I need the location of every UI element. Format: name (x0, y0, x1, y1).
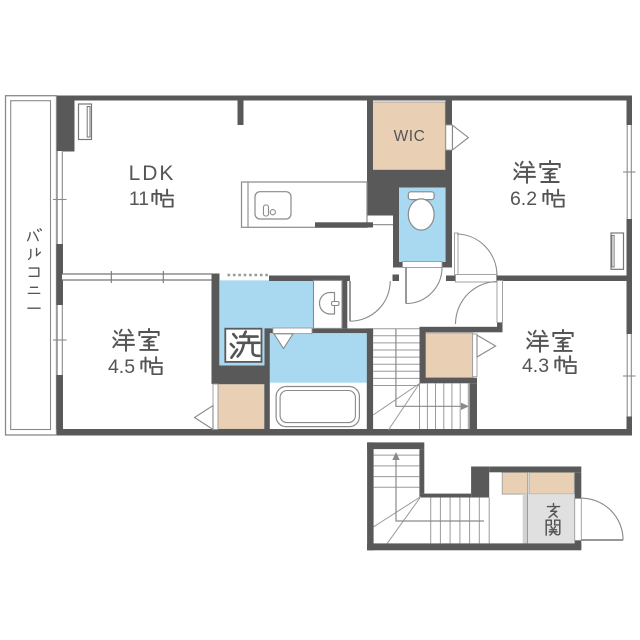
svg-text:4.5: 4.5 (108, 356, 135, 378)
svg-text:4.3: 4.3 (522, 355, 549, 377)
svg-text:LDK: LDK (129, 162, 176, 185)
svg-text:11: 11 (129, 188, 149, 210)
svg-text:6.2: 6.2 (510, 188, 537, 210)
svg-text:WIC: WIC (394, 128, 426, 145)
